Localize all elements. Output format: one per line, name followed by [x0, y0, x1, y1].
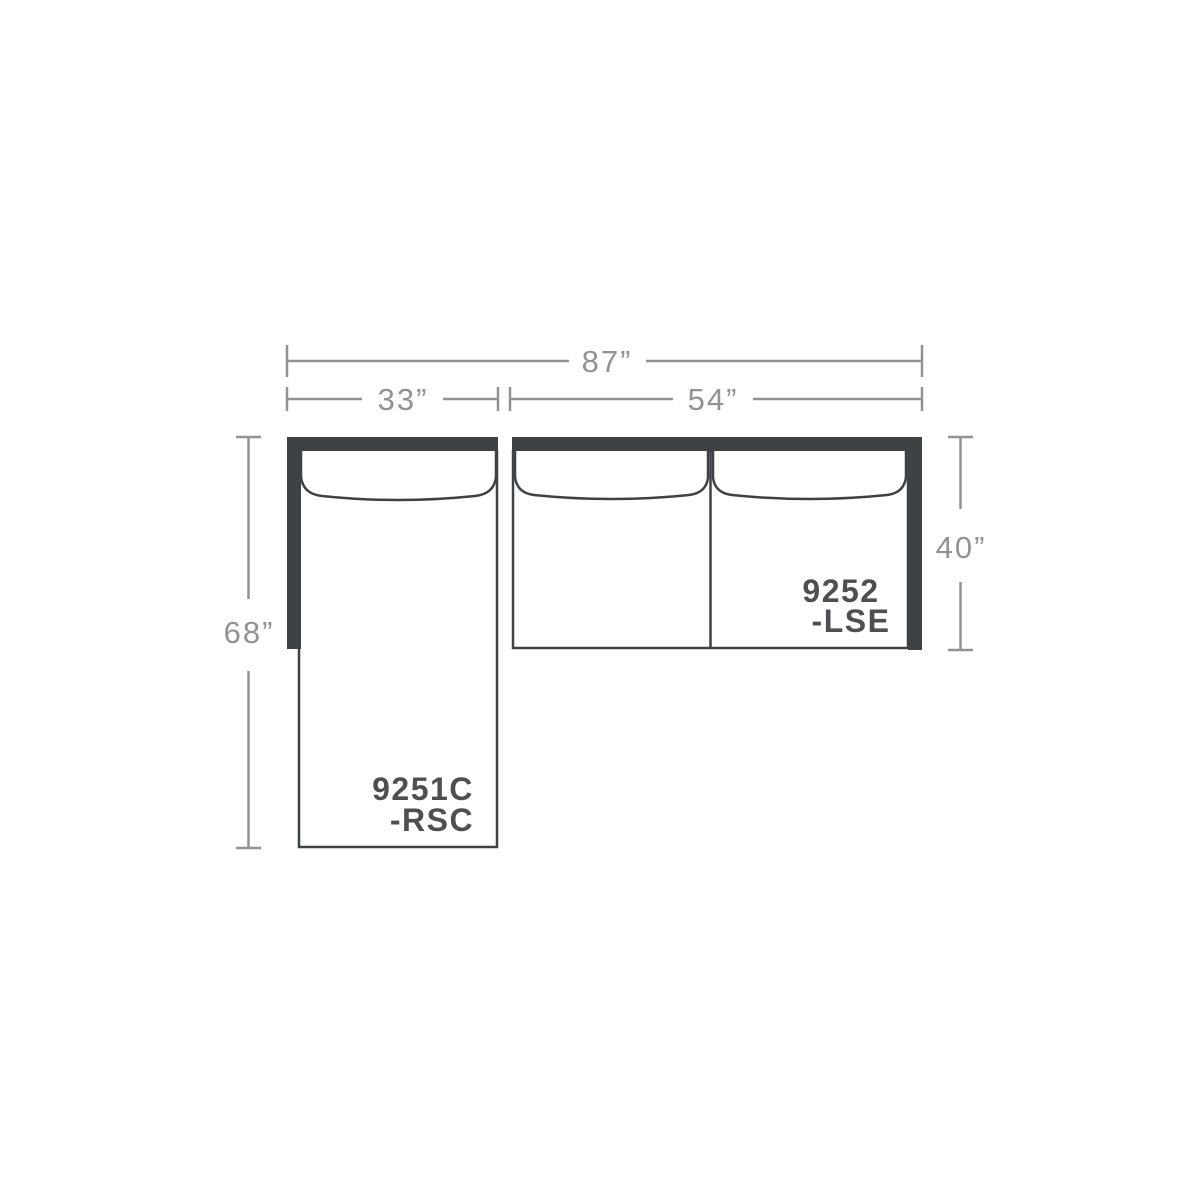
dim-68-label: 68” — [224, 615, 275, 650]
dim-40-label: 40” — [936, 530, 987, 565]
dim-54-label: 54” — [688, 382, 739, 417]
chaise-position-label: -RSC — [390, 802, 474, 838]
sofa-right-arm — [908, 437, 922, 650]
sofa-back-cushion-right — [713, 450, 906, 499]
sofa-back-cushion-left — [515, 450, 708, 499]
chaise-back-cushion — [301, 450, 496, 500]
dimension-overall-width: 87” — [287, 344, 922, 379]
dimension-chaise-width: 33” — [287, 382, 498, 417]
sectional-floorplan-svg: 9251C -RSC 9252 -LSE 87” — [0, 0, 1200, 1200]
dimension-chaise-depth: 68” — [224, 437, 275, 848]
dim-87-label: 87” — [582, 344, 633, 379]
chaise-piece: 9251C -RSC — [287, 437, 498, 847]
chaise-backrest-bar — [287, 437, 498, 451]
dimension-sofa-depth: 40” — [936, 437, 987, 650]
sofa-backrest-bar — [512, 437, 922, 451]
sectional-diagram: 9251C -RSC 9252 -LSE 87” — [0, 0, 1200, 1200]
dimension-sofa-width: 54” — [510, 382, 922, 417]
sofa-position-label: -LSE — [812, 603, 891, 639]
dim-33-label: 33” — [378, 382, 429, 417]
sofa-piece: 9252 -LSE — [512, 437, 922, 650]
chaise-left-arm — [287, 437, 301, 649]
